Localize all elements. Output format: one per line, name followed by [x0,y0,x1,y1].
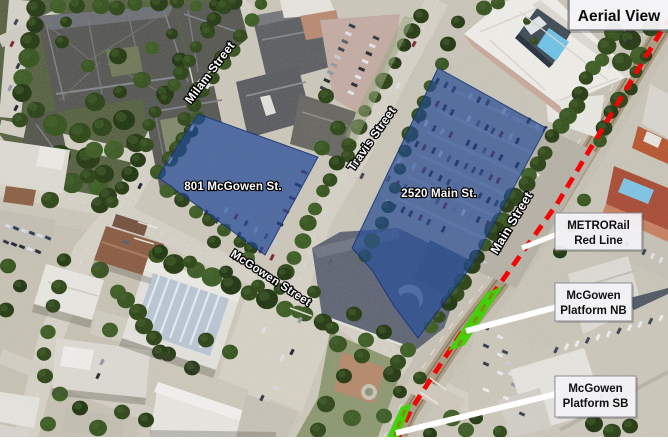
svg-text:Red Line: Red Line [574,235,623,247]
svg-text:Platform SB: Platform SB [563,398,629,410]
svg-text:Platform NB: Platform NB [560,305,626,317]
svg-text:McGowen: McGowen [568,383,622,395]
svg-text:METRORail: METRORail [567,220,630,232]
svg-text:Aerial View: Aerial View [578,8,661,25]
svg-text:801 McGowen St.: 801 McGowen St. [184,181,282,193]
svg-text:McGowen: McGowen [566,290,620,302]
svg-text:2520 Main St.: 2520 Main St. [401,188,476,200]
